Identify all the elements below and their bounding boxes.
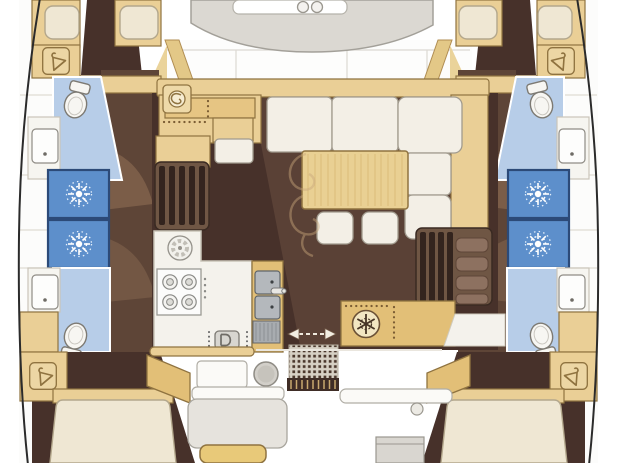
deck-hatch-icon <box>312 2 323 13</box>
door-step <box>444 314 505 346</box>
winch-icon <box>411 403 423 415</box>
foredeck <box>151 0 472 80</box>
galley-fiddle-rail <box>150 347 254 356</box>
foredeck-cushion <box>233 0 347 14</box>
round-sink-icon <box>168 236 192 260</box>
oven-icon <box>215 331 239 349</box>
winch-top <box>258 366 275 383</box>
fridge-snowflake-icon <box>353 311 380 338</box>
companionway-steps-port <box>155 162 209 230</box>
chart-table <box>156 85 261 167</box>
cockpit-cabinet <box>376 437 424 463</box>
settee-corner-cushion <box>398 97 462 153</box>
stool <box>317 212 353 244</box>
settee-cushion <box>267 97 332 152</box>
cockpit-side-panel <box>340 389 452 403</box>
refrigerator <box>341 301 455 346</box>
companionway-steps-starboard <box>416 228 492 305</box>
catamaran-floor-plan <box>0 0 617 463</box>
settee-cushion <box>405 153 451 195</box>
saloon-forward-sideboard <box>157 79 489 97</box>
cockpit-bench-seat <box>188 399 287 448</box>
chart-seat-cushion <box>215 139 253 163</box>
saloon-table <box>302 151 408 209</box>
cockpit-bench-back <box>192 387 284 400</box>
cockpit-module <box>197 361 247 388</box>
stove-icon <box>157 269 205 315</box>
drainboard <box>253 321 280 343</box>
stool <box>362 212 398 244</box>
sliding-door-threshold <box>287 378 339 391</box>
nav-instrument-icon <box>163 85 191 113</box>
settee-cushion <box>332 97 398 152</box>
floor-plan-canvas <box>0 0 617 463</box>
deck-hatch-icon <box>298 2 309 13</box>
cockpit-table <box>200 445 266 463</box>
